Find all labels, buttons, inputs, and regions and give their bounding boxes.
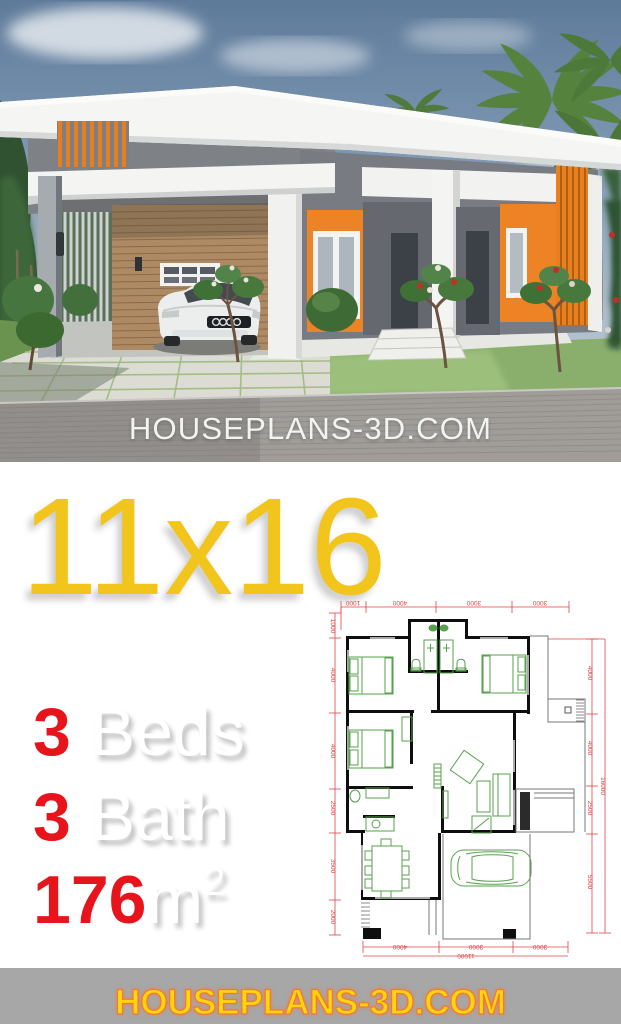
svg-text:11000: 11000 (457, 952, 475, 959)
svg-text:2500: 2500 (329, 801, 336, 816)
svg-text:3000: 3000 (468, 943, 483, 950)
svg-text:4000: 4000 (329, 668, 336, 683)
svg-text:4000: 4000 (329, 744, 336, 759)
svg-text:3000: 3000 (532, 943, 547, 950)
svg-text:3000: 3000 (466, 599, 481, 606)
svg-text:1000: 1000 (345, 599, 360, 606)
svg-text:2500: 2500 (586, 801, 593, 816)
svg-text:3000: 3000 (532, 599, 547, 606)
svg-text:1000: 1000 (329, 619, 336, 634)
svg-text:4000: 4000 (392, 943, 407, 950)
svg-text:16000: 16000 (599, 777, 606, 795)
svg-text:2000: 2000 (329, 910, 336, 925)
svg-text:4000: 4000 (392, 599, 407, 606)
svg-text:4000: 4000 (586, 666, 593, 681)
svg-text:4000: 4000 (586, 741, 593, 756)
svg-text:5500: 5500 (586, 875, 593, 890)
svg-text:3500: 3500 (329, 859, 336, 874)
